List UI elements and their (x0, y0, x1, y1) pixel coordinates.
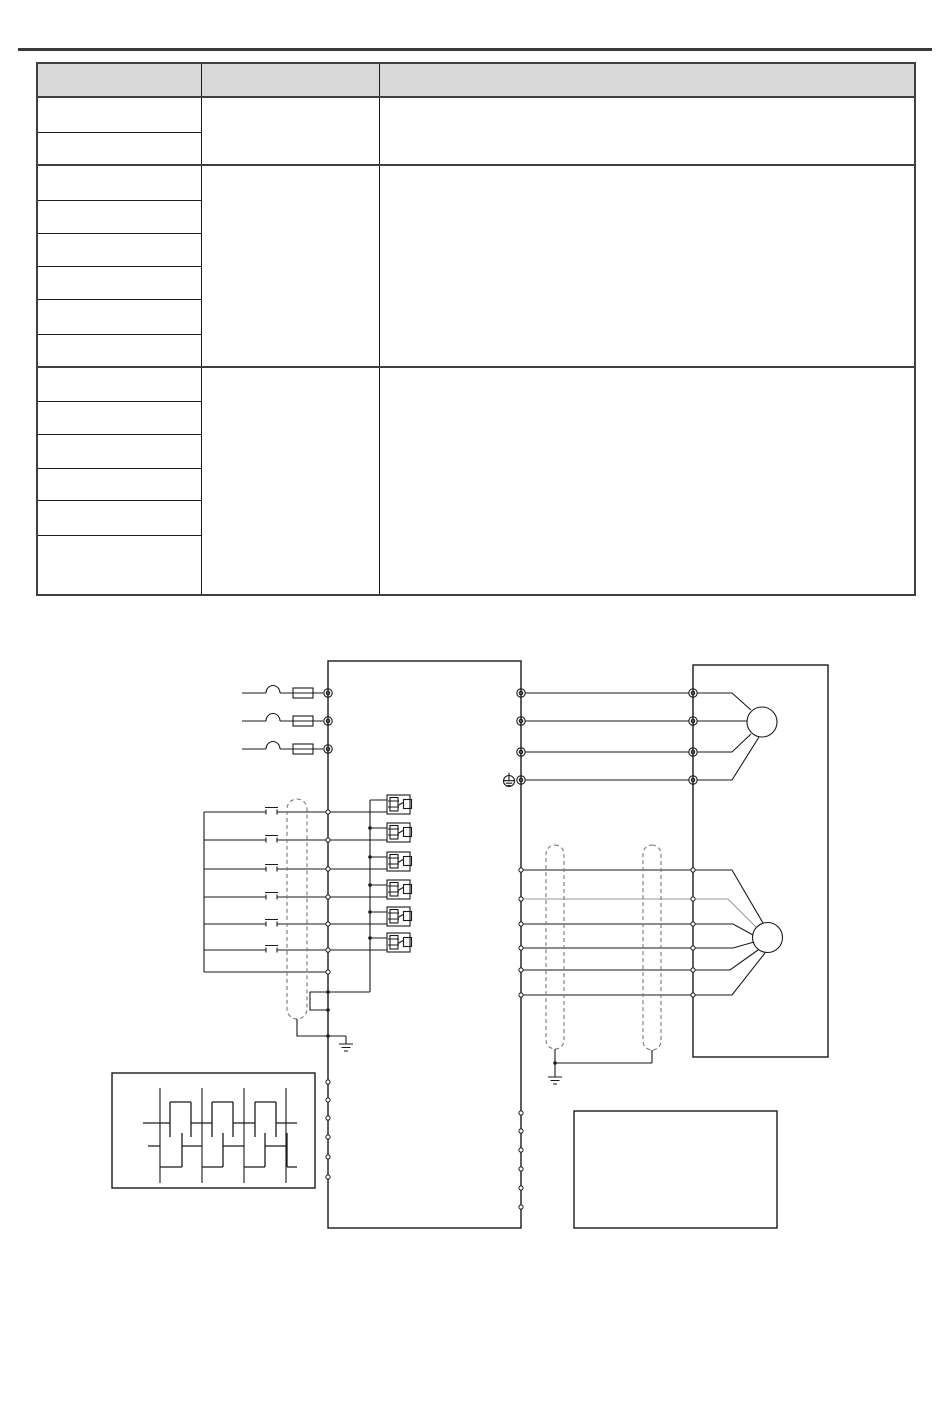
table-row (37, 165, 915, 200)
table-cell (37, 500, 201, 535)
pulse-trace-a (143, 1102, 297, 1137)
encoder-wires (519, 868, 783, 997)
encoder-cable-shields (546, 845, 661, 1084)
table-cell (201, 367, 379, 595)
bottom-right-box (574, 1111, 777, 1228)
table-cell (379, 97, 915, 165)
mains-phase-line (242, 742, 332, 755)
table-cell (37, 266, 201, 299)
table-header-row (37, 63, 915, 97)
motor-power-wires (517, 689, 777, 784)
optocoupler-icon (368, 880, 411, 899)
table-cell (37, 165, 201, 200)
optocoupler-icon (368, 852, 411, 871)
table-cell (201, 165, 379, 367)
pe-terminal-icon (504, 773, 515, 787)
table-cell (37, 200, 201, 233)
terminal-icon (517, 689, 697, 784)
table-cell (37, 334, 201, 367)
table-header-cell (37, 63, 201, 97)
ground-icon (548, 1063, 562, 1084)
table-cell (37, 132, 201, 165)
page-top-rule (18, 48, 932, 51)
mains-phase-line (242, 686, 332, 699)
table-header-cell (201, 63, 379, 97)
manual-page (0, 0, 950, 1425)
table-cell (37, 299, 201, 334)
optocoupler-icon (368, 907, 411, 926)
table-cell (379, 165, 915, 367)
table-cell (37, 434, 201, 468)
optocoupler-icon (370, 795, 412, 814)
edge-pin-icon (519, 868, 695, 997)
table-cell (379, 367, 915, 595)
table-cell (201, 97, 379, 165)
cable-shield-icon (546, 845, 564, 1049)
ground-icon (339, 1036, 353, 1051)
table-cell (37, 535, 201, 595)
control-input-wires (204, 808, 387, 975)
optocoupler-icons (310, 795, 412, 1012)
control-cable-shield (287, 799, 353, 1051)
motor-encoder-circle (753, 923, 783, 953)
cable-shield-icon (287, 799, 307, 1019)
table-header-cell (379, 63, 915, 97)
table-cell (37, 401, 201, 434)
table-row (37, 367, 915, 401)
table-cell (37, 97, 201, 132)
wiring-diagram (0, 630, 950, 1250)
optocoupler-icon (368, 823, 411, 842)
servo-drive-box (328, 661, 521, 1228)
optocoupler-icon (368, 933, 411, 952)
motor-winding-circle (747, 707, 777, 737)
table-cell (37, 233, 201, 266)
table-cell (37, 468, 201, 500)
pulse-waveform-box (112, 1073, 315, 1188)
mains-phase-line (242, 714, 332, 726)
pulse-trace-b (148, 1133, 297, 1167)
table-row (37, 97, 915, 132)
motor-box (693, 665, 828, 1057)
mains-input-lines (242, 686, 332, 755)
spec-table (36, 62, 916, 596)
table-cell (37, 367, 201, 401)
